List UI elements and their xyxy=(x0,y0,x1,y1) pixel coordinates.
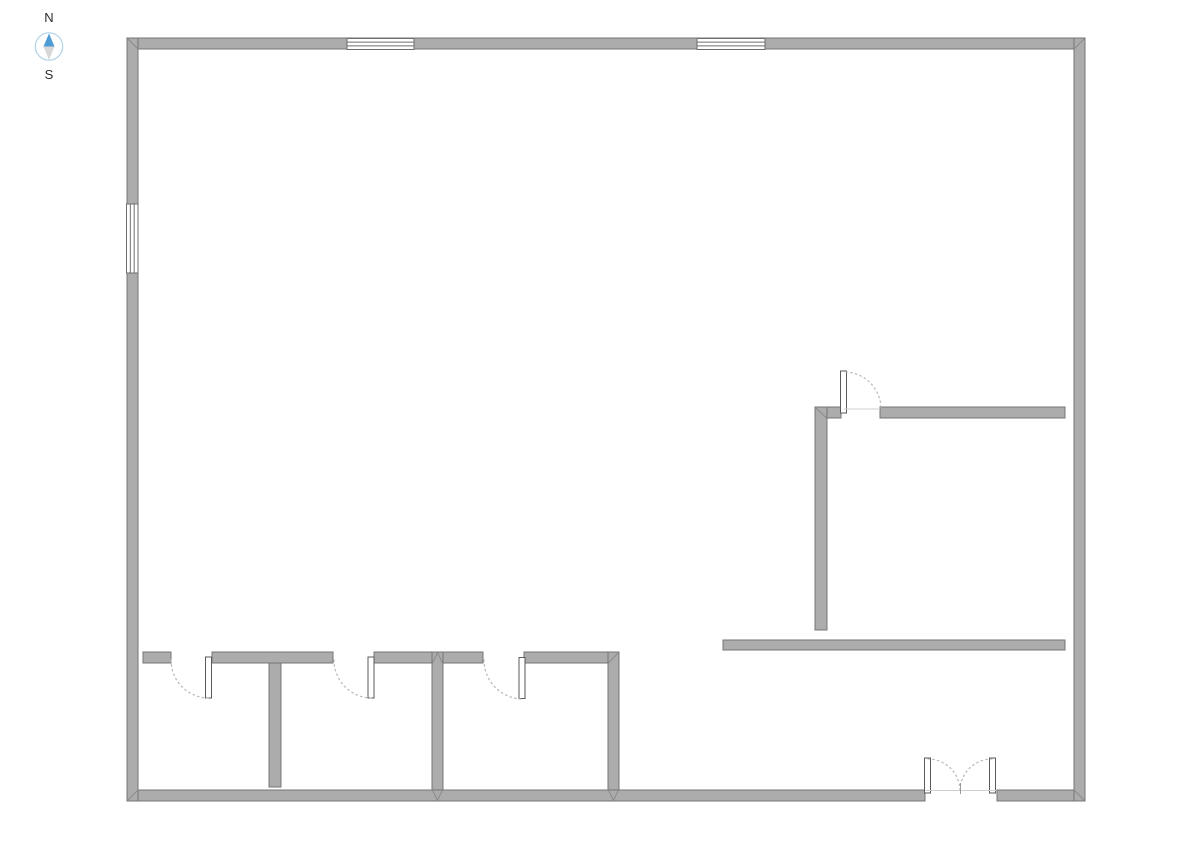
double-door-swing-arc-right[interactable] xyxy=(960,759,992,790)
double-door-swing-arc-left[interactable] xyxy=(928,759,960,790)
compass-south-label: S xyxy=(45,67,54,82)
window-left[interactable] xyxy=(127,204,139,273)
partition-wall-b[interactable] xyxy=(374,652,483,663)
window-top-2[interactable] xyxy=(697,39,765,50)
annotation-lines-layer xyxy=(844,409,997,794)
partition-wall-c[interactable] xyxy=(524,652,619,663)
right-room-wall-lower[interactable] xyxy=(723,640,1065,650)
door-swing-arc-right-room[interactable] xyxy=(846,372,881,409)
outer-wall-left[interactable] xyxy=(127,38,138,801)
outer-wall-bottom-right-of-door[interactable] xyxy=(997,790,1085,801)
outer-wall-bottom-left-of-door[interactable] xyxy=(127,790,925,801)
partition-wall-stub[interactable] xyxy=(143,652,171,663)
door-leaf-right-room[interactable] xyxy=(841,371,847,413)
floor-plan-canvas[interactable]: N S xyxy=(0,0,1191,842)
room-divider-wall-2[interactable] xyxy=(432,652,443,790)
right-room-wall-top[interactable] xyxy=(880,407,1065,418)
outer-wall-right[interactable] xyxy=(1074,38,1085,801)
double-door-leaf-right[interactable] xyxy=(990,758,996,793)
doors-layer xyxy=(171,371,996,793)
compass-north-needle-icon xyxy=(44,34,55,47)
window-top-1[interactable] xyxy=(347,39,414,50)
partition-wall-a[interactable] xyxy=(212,652,333,663)
compass-north-label: N xyxy=(44,10,53,25)
floor-plan-page: N S xyxy=(0,0,1191,842)
walls-layer xyxy=(127,38,1085,801)
door-leaf-1[interactable] xyxy=(206,657,212,698)
door-swing-arc-2[interactable] xyxy=(334,660,371,698)
room-divider-wall-3[interactable] xyxy=(608,652,619,790)
right-room-wall-vertical[interactable] xyxy=(815,407,827,630)
room-divider-wall-1[interactable] xyxy=(269,663,281,787)
door-leaf-2[interactable] xyxy=(368,657,374,698)
compass-rose: N S xyxy=(35,10,62,82)
door-leaf-3[interactable] xyxy=(519,658,525,699)
door-swing-arc-3[interactable] xyxy=(484,660,522,699)
windows-layer xyxy=(127,39,766,274)
outer-wall-top[interactable] xyxy=(127,38,1085,49)
double-door-leaf-left[interactable] xyxy=(925,758,931,793)
compass-south-needle-icon xyxy=(44,47,55,61)
door-swing-arc-1[interactable] xyxy=(171,660,208,698)
